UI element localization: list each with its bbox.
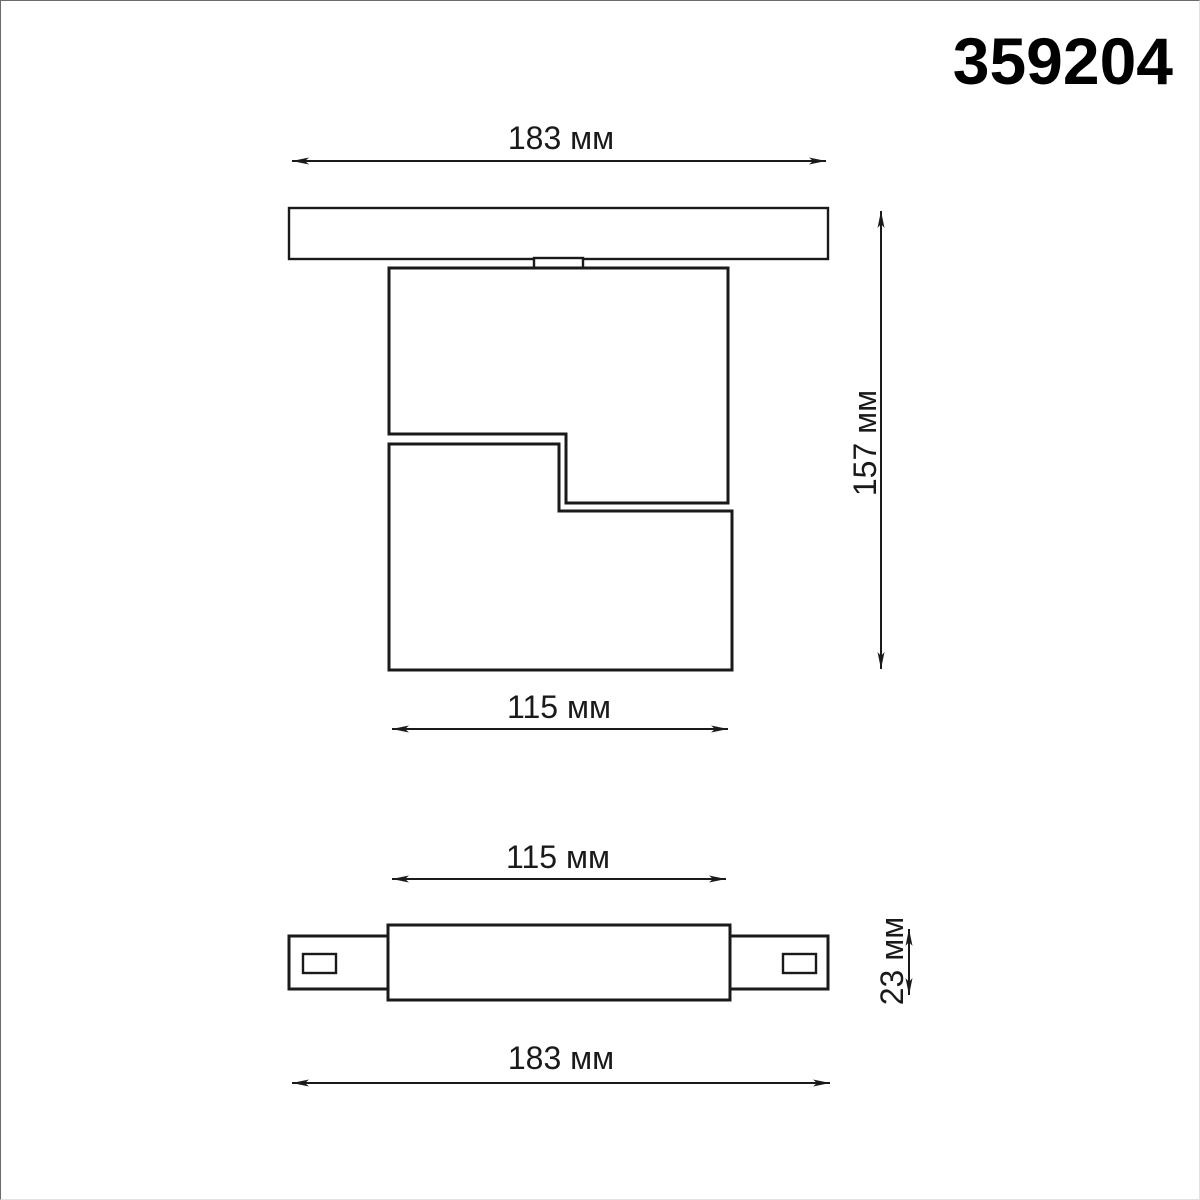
product-code: 359204 xyxy=(953,24,1174,98)
side-view: 183 мм 157 мм 115 мм xyxy=(289,120,883,729)
side-view-dim-track-width: 183 мм xyxy=(292,120,826,161)
technical-drawing-sheet: 183 мм 157 мм 115 мм xyxy=(0,0,1200,1200)
top-view: 115 мм 23 мм 183 мм xyxy=(289,839,910,1083)
track-profile xyxy=(289,208,828,259)
drawing-svg: 183 мм 157 мм 115 мм xyxy=(1,1,1200,1200)
top-view-dim-track-width: 183 мм xyxy=(292,1040,830,1083)
side-view-dim-track-width-label: 183 мм xyxy=(508,120,614,156)
top-view-dim-body-width-label: 115 мм xyxy=(506,839,610,875)
side-view-dim-body-width-label: 115 мм xyxy=(507,689,611,725)
side-view-dim-height-label: 157 мм xyxy=(847,390,883,496)
top-view-dim-height: 23 мм xyxy=(874,917,910,1005)
top-view-dim-body-width: 115 мм xyxy=(392,839,726,879)
top-view-central-body xyxy=(388,925,730,1000)
top-view-dim-height-label: 23 мм xyxy=(874,917,910,1005)
left-wing-slot xyxy=(303,954,336,973)
side-view-dim-height: 157 мм xyxy=(847,211,883,669)
right-wing-slot xyxy=(783,954,816,973)
top-view-dim-track-width-label: 183 мм xyxy=(508,1040,614,1076)
side-view-dim-body-width: 115 мм xyxy=(392,689,728,729)
